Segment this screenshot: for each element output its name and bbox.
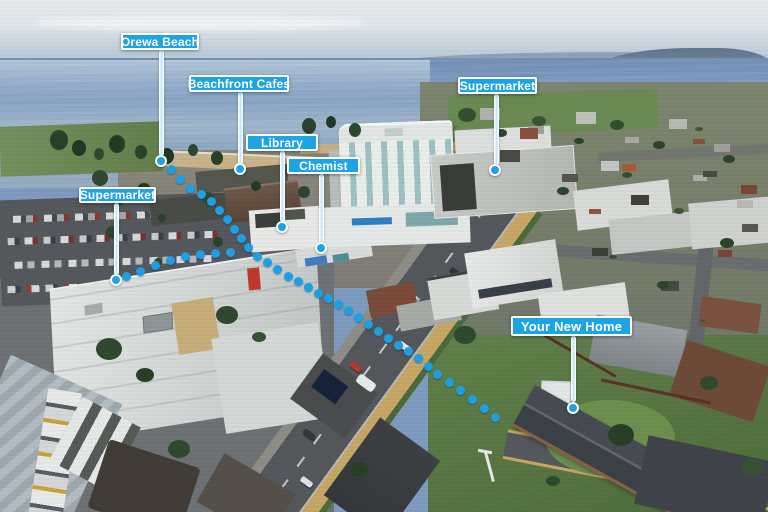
- trail-dot-to_west_supermarket: [196, 250, 205, 259]
- aerial-photo: Orewa BeachBeachfront CafesSupermarketLi…: [0, 0, 768, 512]
- trail-dot-beach_to_home: [273, 265, 282, 274]
- trail-dot-beach_to_home: [468, 395, 477, 404]
- callout-dot-chemist: [315, 242, 327, 254]
- trail-dot-to_west_supermarket: [211, 249, 220, 258]
- trail-dot-beach_to_home: [294, 277, 303, 286]
- callout-dot-supermarket-north: [489, 164, 501, 176]
- callout-line-chemist: [319, 174, 324, 243]
- trail-dot-to_west_supermarket: [122, 272, 131, 281]
- callout-label-beachfront-cafes: Beachfront Cafes: [189, 75, 289, 92]
- callout-line-your-new-home: [571, 336, 576, 402]
- trail-dot-beach_to_home: [480, 404, 489, 413]
- trail-dot-beach_to_home: [176, 175, 185, 184]
- callout-label-library: Library: [246, 134, 318, 151]
- trail-dot-beach_to_home: [244, 243, 253, 252]
- trail-dot-beach_to_home: [207, 197, 216, 206]
- callout-line-orewa-beach: [159, 50, 164, 156]
- trail-dot-beach_to_home: [364, 320, 373, 329]
- trail-dot-beach_to_home: [304, 283, 313, 292]
- trail-dot-beach_to_home: [215, 206, 224, 215]
- trail-dot-beach_to_home: [394, 341, 403, 350]
- callout-line-supermarket-west: [114, 203, 119, 275]
- callout-label-chemist: Chemist: [287, 157, 360, 174]
- trail-dot-beach_to_home: [197, 190, 206, 199]
- trail-dot-to_west_supermarket: [226, 248, 235, 257]
- callout-dot-your-new-home: [567, 402, 579, 414]
- trail-dot-to_west_supermarket: [181, 252, 190, 261]
- trail-dot-beach_to_home: [354, 313, 363, 322]
- trail-dot-beach_to_home: [433, 370, 442, 379]
- trail-dot-beach_to_home: [404, 347, 413, 356]
- callout-dot-supermarket-west: [110, 274, 122, 286]
- callout-dot-beachfront-cafes: [234, 163, 246, 175]
- callout-line-library: [280, 151, 285, 222]
- trail-dot-to_west_supermarket: [166, 256, 175, 265]
- trail-dot-beach_to_home: [324, 294, 333, 303]
- trail-dot-beach_to_home: [384, 334, 393, 343]
- callout-label-supermarket-west: Supermarket: [79, 187, 156, 203]
- trail-dot-to_west_supermarket: [151, 261, 160, 270]
- callout-label-supermarket-north: Supermarket: [458, 77, 537, 94]
- trail-dot-beach_to_home: [334, 300, 343, 309]
- trail-dot-beach_to_home: [445, 378, 454, 387]
- trail-dot-beach_to_home: [414, 354, 423, 363]
- trail-dot-beach_to_home: [424, 362, 433, 371]
- trail-dot-beach_to_home: [237, 234, 246, 243]
- callout-label-orewa-beach: Orewa Beach: [121, 33, 199, 50]
- trail-dot-beach_to_home: [223, 215, 232, 224]
- callout-line-supermarket-north: [494, 94, 499, 165]
- trail-dot-beach_to_home: [230, 225, 239, 234]
- trail-dot-beach_to_home: [314, 289, 323, 298]
- callout-line-beachfront-cafes: [238, 92, 243, 164]
- trail-dot-beach_to_home: [263, 258, 272, 267]
- trail-dot-beach_to_home: [167, 165, 176, 174]
- trail-dot-beach_to_home: [344, 306, 353, 315]
- callout-dot-orewa-beach: [155, 155, 167, 167]
- trail-dot-beach_to_home: [284, 272, 293, 281]
- callout-dot-library: [276, 221, 288, 233]
- trail-dot-beach_to_home: [491, 413, 500, 422]
- annotation-layer: Orewa BeachBeachfront CafesSupermarketLi…: [0, 0, 768, 512]
- trail-dot-beach_to_home: [456, 386, 465, 395]
- trail-dot-beach_to_home: [374, 327, 383, 336]
- trail-dot-beach_to_home: [253, 252, 262, 261]
- trail-dot-to_west_supermarket: [136, 267, 145, 276]
- callout-label-your-new-home: Your New Home: [511, 316, 632, 336]
- trail-dot-beach_to_home: [186, 184, 195, 193]
